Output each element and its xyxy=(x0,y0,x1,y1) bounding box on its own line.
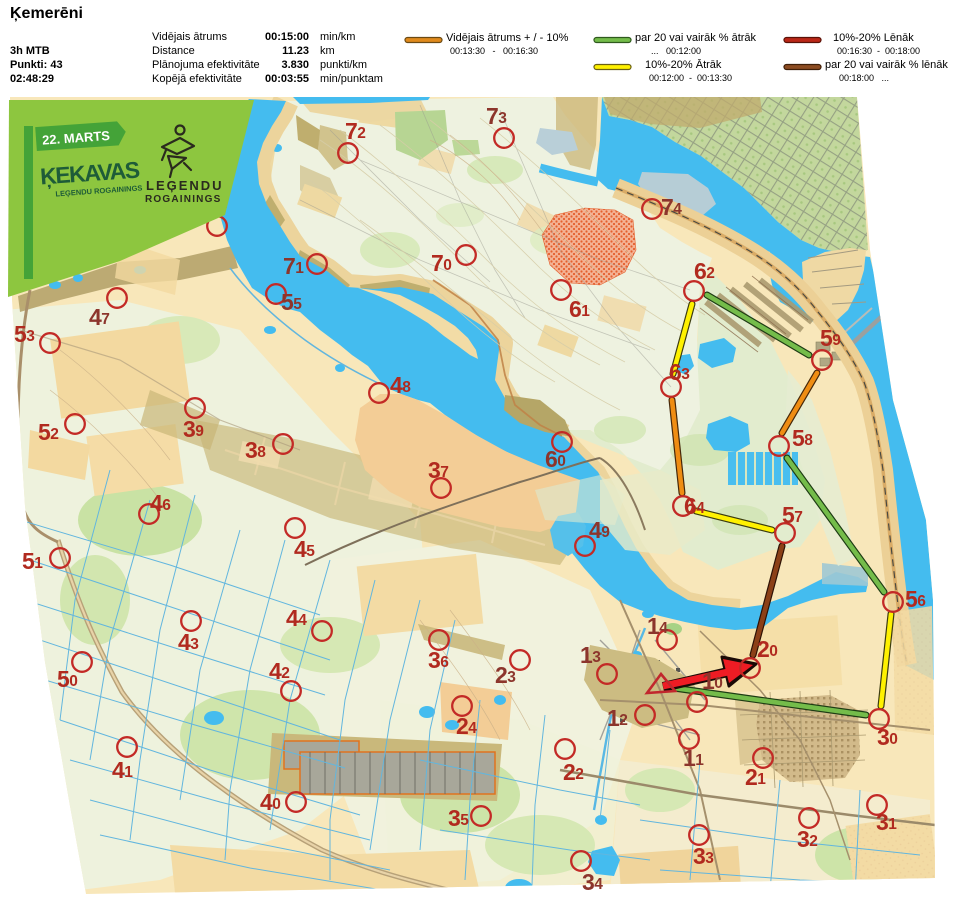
svg-text:ROGAININGS: ROGAININGS xyxy=(145,194,221,205)
svg-text:LEĢENDU: LEĢENDU xyxy=(146,178,224,193)
